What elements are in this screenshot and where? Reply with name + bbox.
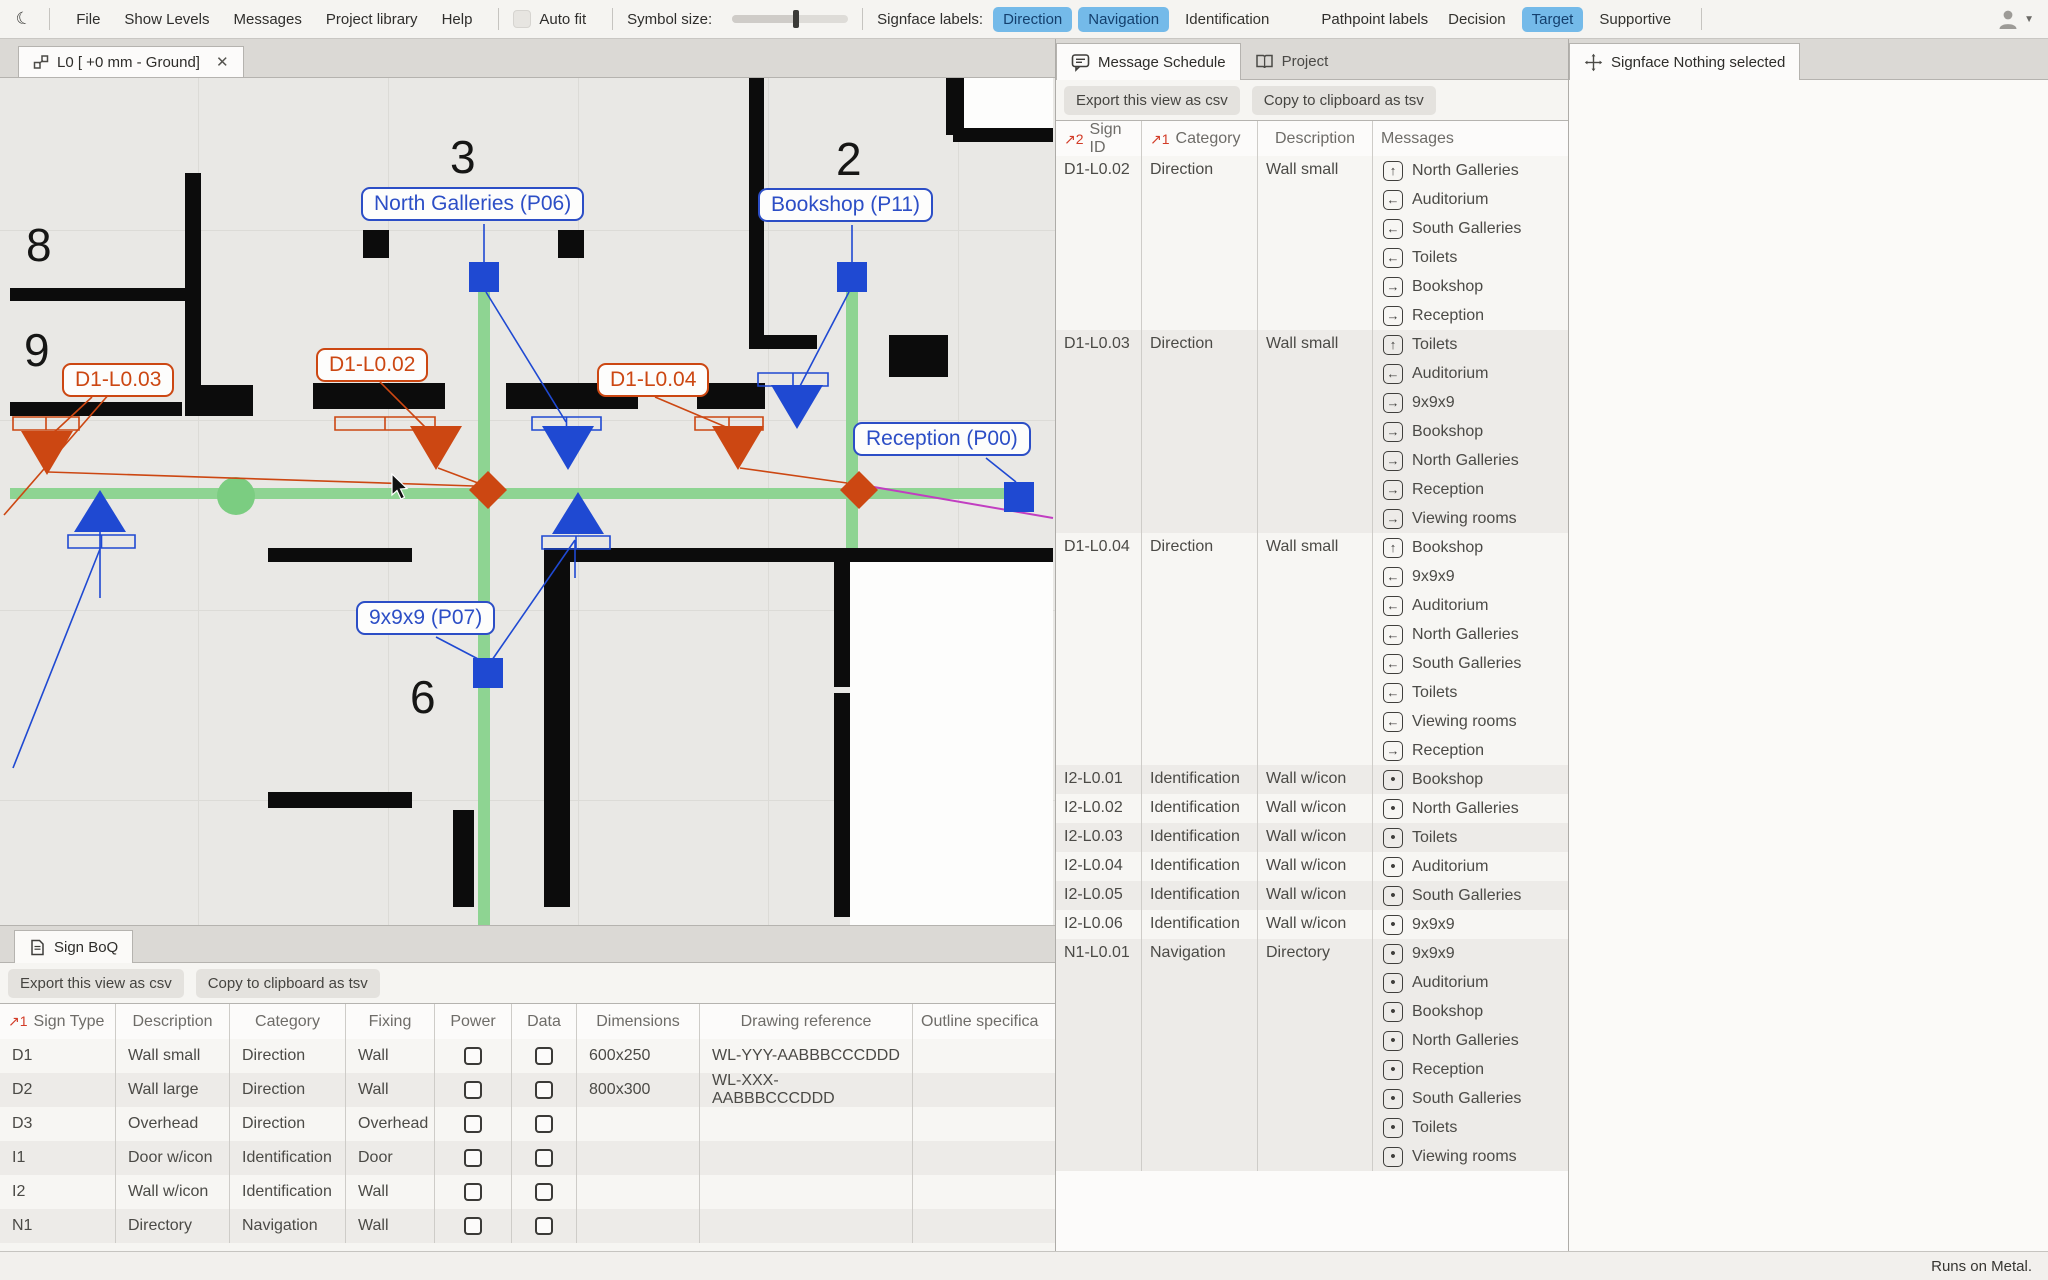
message-text: Bookshop — [1412, 771, 1483, 789]
signface-triangle-up[interactable] — [74, 490, 126, 532]
arrow-dot-icon: • — [1383, 1089, 1403, 1109]
sign-row-i2-l0-05[interactable]: I2-L0.05IdentificationWall w/icon•South … — [1056, 881, 1568, 910]
sign-type-cell: I1 — [0, 1141, 116, 1175]
message-item[interactable]: →Reception — [1373, 475, 1568, 504]
connector-line — [48, 472, 474, 486]
boq-toolbar: Export this view as csv Copy to clipboar… — [0, 963, 1055, 1003]
room-number: 9 — [24, 323, 50, 377]
power-checkbox[interactable] — [464, 1149, 482, 1167]
column-label: Category — [255, 1013, 320, 1031]
signface-label-navigation[interactable]: Navigation — [1078, 7, 1169, 32]
sign-row-i2-l0-02[interactable]: I2-L0.02IdentificationWall w/icon•North … — [1056, 794, 1568, 823]
message-text: North Galleries — [1412, 162, 1519, 180]
tab-label: Message Schedule — [1098, 54, 1226, 71]
boq-row-i1[interactable]: I1Door w/iconIdentificationDoor — [0, 1141, 1055, 1175]
column-label: Category — [1176, 130, 1241, 148]
boq-row-n1[interactable]: N1DirectoryNavigationWall — [0, 1209, 1055, 1243]
column-label: Sign Type — [34, 1013, 105, 1031]
separator — [49, 8, 50, 30]
message-text: North Galleries — [1412, 452, 1519, 470]
messages-cell: ↑North Galleries←Auditorium←South Galler… — [1373, 156, 1569, 330]
message-text: Viewing rooms — [1412, 1148, 1517, 1166]
tab-signface[interactable]: Signface Nothing selected — [1569, 43, 1800, 80]
arrow-up-icon: ↑ — [1383, 161, 1403, 181]
message-item[interactable]: ←Auditorium — [1373, 185, 1568, 214]
menu-show-levels[interactable]: Show Levels — [112, 7, 221, 32]
category-cell: Identification — [1142, 794, 1258, 823]
signface-triangle-up[interactable] — [552, 492, 604, 534]
export-csv-button[interactable]: Export this view as csv — [8, 969, 184, 998]
data-checkbox[interactable] — [535, 1115, 553, 1133]
message-text: Toilets — [1412, 336, 1457, 354]
description-cell: Wall small — [1258, 330, 1373, 533]
arrow-dot-icon: • — [1383, 1031, 1403, 1051]
menu-messages[interactable]: Messages — [221, 7, 313, 32]
category-cell: Direction — [230, 1039, 346, 1073]
fixing-cell: Wall — [346, 1175, 435, 1209]
message-text: Auditorium — [1412, 597, 1488, 615]
sign-row-d1-l0-03[interactable]: D1-L0.03DirectionWall small↑Toilets←Audi… — [1056, 330, 1568, 533]
message-item[interactable]: •9x9x9 — [1373, 910, 1568, 939]
sign-id-cell: D1-L0.02 — [1056, 156, 1142, 330]
description-cell: Wall w/icon — [1258, 765, 1373, 794]
pathpoint-square[interactable] — [469, 262, 499, 292]
message-text: North Galleries — [1412, 800, 1519, 818]
message-item[interactable]: •Bookshop — [1373, 765, 1568, 794]
tab-level-l0[interactable]: L0 [ +0 mm - Ground] ✕ — [18, 46, 244, 77]
outline-spec-cell — [913, 1175, 1053, 1209]
message-item[interactable]: →Bookshop — [1373, 417, 1568, 446]
category-cell: Identification — [1142, 765, 1258, 794]
message-text: North Galleries — [1412, 1032, 1519, 1050]
signface-tab-label: Signface Nothing selected — [1611, 54, 1785, 71]
sign-row-i2-l0-01[interactable]: I2-L0.01IdentificationWall w/icon•Booksh… — [1056, 765, 1568, 794]
user-menu[interactable]: ▼ — [1997, 8, 2034, 30]
sign-rect[interactable] — [542, 536, 610, 549]
move-icon — [1584, 53, 1603, 72]
power-checkbox[interactable] — [464, 1081, 482, 1099]
message-text: Auditorium — [1412, 858, 1488, 876]
category-cell: Identification — [1142, 852, 1258, 881]
data-cell — [512, 1209, 577, 1243]
sign-row-i2-l0-04[interactable]: I2-L0.04IdentificationWall w/icon•Audito… — [1056, 852, 1568, 881]
message-schedule-panel: Message Schedule Project Export this vie… — [1055, 39, 1568, 1251]
symbol-size-slider[interactable] — [732, 15, 848, 23]
sign-id-cell: I2-L0.02 — [1056, 794, 1142, 823]
arrow-dot-icon: • — [1383, 915, 1403, 935]
pathpoint-label-toggles: DecisionTargetSupportive — [1438, 7, 1687, 32]
boq-tab-strip: Sign BoQ — [0, 926, 1055, 963]
message-item[interactable]: ←Auditorium — [1373, 591, 1568, 620]
message-text: Toilets — [1412, 1119, 1457, 1137]
column-label: Drawing reference — [741, 1013, 872, 1031]
data-checkbox[interactable] — [535, 1183, 553, 1201]
message-text: Reception — [1412, 1061, 1484, 1079]
description-cell: Wall w/icon — [1258, 881, 1373, 910]
message-text: Auditorium — [1412, 191, 1488, 209]
message-text: Toilets — [1412, 249, 1457, 267]
arrow-up-icon: ↑ — [1383, 335, 1403, 355]
message-item[interactable]: •Bookshop — [1373, 997, 1568, 1026]
sign-row-d1-l0-04[interactable]: D1-L0.04DirectionWall small↑Bookshop←9x9… — [1056, 533, 1568, 765]
sign-boq-panel: Sign BoQ Export this view as csv Copy to… — [0, 925, 1055, 1251]
arrow-left-icon: ← — [1383, 248, 1403, 268]
status-bar: Runs on Metal. — [0, 1251, 2048, 1280]
room-number: 3 — [450, 130, 476, 184]
message-text: 9x9x9 — [1412, 394, 1455, 412]
pathpoint-label-target[interactable]: Target — [1522, 7, 1584, 32]
data-checkbox[interactable] — [535, 1149, 553, 1167]
slider-track[interactable] — [732, 15, 848, 23]
column-label: Messages — [1381, 130, 1454, 148]
arrow-left-icon: ← — [1383, 190, 1403, 210]
signface-triangle-down[interactable] — [21, 431, 73, 475]
signface-tab-strip: Signface Nothing selected — [1569, 39, 2048, 80]
signface-flag[interactable]: D1-L0.03 — [62, 363, 174, 397]
tab-sign-boq[interactable]: Sign BoQ — [14, 930, 133, 963]
category-cell: Identification — [1142, 910, 1258, 939]
column-header-data[interactable]: Data — [512, 1004, 577, 1039]
category-cell: Identification — [1142, 823, 1258, 852]
signface-flag[interactable]: D1-L0.02 — [316, 348, 428, 382]
category-cell: Direction — [1142, 533, 1258, 765]
column-header-drawing-reference[interactable]: Drawing reference — [700, 1004, 913, 1039]
data-checkbox[interactable] — [535, 1217, 553, 1235]
boq-row-i2[interactable]: I2Wall w/iconIdentificationWall — [0, 1175, 1055, 1209]
column-header-outline-specifica[interactable]: Outline specifica — [913, 1004, 1053, 1039]
copy-tsv-button[interactable]: Copy to clipboard as tsv — [1252, 86, 1436, 115]
signface-triangle-down[interactable] — [542, 426, 594, 470]
connector-line — [13, 549, 100, 768]
signface-triangle-down[interactable] — [712, 426, 764, 470]
signface-triangle-down[interactable] — [410, 426, 462, 470]
fixing-cell: Door — [346, 1141, 435, 1175]
tab-message-schedule[interactable]: Message Schedule — [1056, 43, 1241, 80]
drawing-reference-cell — [700, 1107, 913, 1141]
message-item[interactable]: →North Galleries — [1373, 446, 1568, 475]
power-checkbox[interactable] — [464, 1047, 482, 1065]
floorplan-canvas[interactable]: North Galleries (P06)Bookshop (P11)Recep… — [0, 78, 1055, 925]
column-header-power[interactable]: Power — [435, 1004, 512, 1039]
arrow-dot-icon: • — [1383, 828, 1403, 848]
arrow-up-icon: ↑ — [1383, 538, 1403, 558]
sign-id-cell: I2-L0.01 — [1056, 765, 1142, 794]
column-label: Power — [450, 1013, 495, 1031]
arrow-right-icon: → — [1383, 480, 1403, 500]
arrow-left-icon: ← — [1383, 712, 1403, 732]
description-cell: Wall small — [116, 1039, 230, 1073]
document-icon — [29, 939, 46, 956]
messages-cell: ↑Toilets←Auditorium→9x9x9→Bookshop→North… — [1373, 330, 1569, 533]
slider-thumb[interactable] — [793, 10, 799, 28]
message-item[interactable]: ←Toilets — [1373, 678, 1568, 707]
sign-row-i2-l0-03[interactable]: I2-L0.03IdentificationWall w/icon•Toilet… — [1056, 823, 1568, 852]
message-item[interactable]: •North Galleries — [1373, 794, 1568, 823]
message-item[interactable]: ←Viewing rooms — [1373, 707, 1568, 736]
connector-line — [438, 468, 478, 483]
sign-type-cell: I2 — [0, 1175, 116, 1209]
connector-line — [492, 540, 575, 660]
data-cell — [512, 1107, 577, 1141]
message-text: Viewing rooms — [1412, 713, 1517, 731]
outline-spec-cell — [913, 1073, 1053, 1107]
arrow-dot-icon: • — [1383, 857, 1403, 877]
category-cell: Identification — [1142, 881, 1258, 910]
arrow-right-icon: → — [1383, 422, 1403, 442]
room-number: 2 — [836, 132, 862, 186]
message-text: 9x9x9 — [1412, 945, 1455, 963]
signface-label-identification[interactable]: Identification — [1175, 7, 1279, 32]
category-cell: Direction — [230, 1107, 346, 1141]
dimensions-cell — [577, 1107, 700, 1141]
power-cell — [435, 1073, 512, 1107]
arrow-right-icon: → — [1383, 741, 1403, 761]
data-cell — [512, 1073, 577, 1107]
fixing-cell: Wall — [346, 1039, 435, 1073]
column-label: Description — [132, 1013, 212, 1031]
pathpoint-label-decision[interactable]: Decision — [1438, 7, 1516, 32]
pathpoint-label[interactable]: Reception (P00) — [853, 422, 1031, 456]
fixing-cell: Wall — [346, 1209, 435, 1243]
fixing-cell: Overhead — [346, 1107, 435, 1141]
fixing-cell: Wall — [346, 1073, 435, 1107]
sign-rect[interactable] — [68, 535, 135, 548]
message-text: Toilets — [1412, 684, 1457, 702]
column-header-category[interactable]: ↗1Category — [1142, 121, 1258, 157]
description-cell: Wall w/icon — [1258, 794, 1373, 823]
chevron-down-icon: ▼ — [2024, 14, 2034, 25]
connector-line — [380, 382, 428, 430]
message-item[interactable]: •Viewing rooms — [1373, 1142, 1568, 1171]
level-tab-strip: L0 [ +0 mm - Ground] ✕ — [0, 39, 1055, 78]
message-item[interactable]: ←Auditorium — [1373, 359, 1568, 388]
message-text: 9x9x9 — [1412, 568, 1455, 586]
message-item[interactable]: ←9x9x9 — [1373, 562, 1568, 591]
message-text: Reception — [1412, 481, 1484, 499]
messages-cell: •Toilets — [1373, 823, 1569, 852]
signface-flag[interactable]: D1-L0.04 — [597, 363, 709, 397]
message-text: Toilets — [1412, 829, 1457, 847]
power-cell — [435, 1107, 512, 1141]
arrow-left-icon: ← — [1383, 364, 1403, 384]
pathpoint-label-supportive[interactable]: Supportive — [1589, 7, 1681, 32]
arrow-dot-icon: • — [1383, 799, 1403, 819]
column-header-sign-id[interactable]: ↗2Sign ID — [1056, 121, 1142, 157]
description-cell: Overhead — [116, 1107, 230, 1141]
sign-id-cell: N1-L0.01 — [1056, 939, 1142, 1171]
message-item[interactable]: •Toilets — [1373, 1113, 1568, 1142]
messages-cell: •South Galleries — [1373, 881, 1569, 910]
category-cell: Direction — [1142, 156, 1258, 330]
arrow-left-icon: ← — [1383, 654, 1403, 674]
column-header-dimensions[interactable]: Dimensions — [577, 1004, 700, 1039]
column-header-description[interactable]: Description — [1258, 121, 1373, 157]
message-text: South Galleries — [1412, 1090, 1521, 1108]
separator — [1701, 8, 1702, 30]
signface-panel: Signface Nothing selected — [1568, 39, 2048, 1251]
power-cell — [435, 1141, 512, 1175]
message-item[interactable]: •North Galleries — [1373, 1026, 1568, 1055]
message-item[interactable]: →9x9x9 — [1373, 388, 1568, 417]
sort-indicator: ↗2 — [1064, 131, 1084, 148]
arrow-dot-icon: • — [1383, 1118, 1403, 1138]
column-label: Sign ID — [1090, 121, 1133, 157]
message-item[interactable]: →Viewing rooms — [1373, 504, 1568, 533]
connector-line — [655, 397, 733, 430]
export-csv-button[interactable]: Export this view as csv — [1064, 86, 1240, 115]
message-item[interactable]: →Reception — [1373, 301, 1568, 330]
drawing-reference-cell — [700, 1175, 913, 1209]
auto-fit-checkbox[interactable] — [513, 10, 531, 28]
description-cell: Wall w/icon — [116, 1175, 230, 1209]
data-checkbox[interactable] — [535, 1047, 553, 1065]
book-icon — [1255, 52, 1274, 71]
pathpoint-label[interactable]: North Galleries (P06) — [361, 187, 584, 221]
message-item[interactable]: •Toilets — [1373, 823, 1568, 852]
signface-triangle-down[interactable] — [771, 385, 823, 429]
dimensions-cell — [577, 1141, 700, 1175]
arrow-right-icon: → — [1383, 393, 1403, 413]
sign-type-cell: N1 — [0, 1209, 116, 1243]
messages-cell: •9x9x9 — [1373, 910, 1569, 939]
menu-help[interactable]: Help — [430, 7, 485, 32]
description-cell: Directory — [116, 1209, 230, 1243]
description-cell: Wall small — [1258, 156, 1373, 330]
column-header-sign-type[interactable]: ↗1Sign Type — [0, 1004, 116, 1039]
power-checkbox[interactable] — [464, 1115, 482, 1133]
arrow-dot-icon: • — [1383, 973, 1403, 993]
description-cell: Wall w/icon — [1258, 823, 1373, 852]
message-text: Bookshop — [1412, 1003, 1483, 1021]
column-label: Data — [527, 1013, 561, 1031]
data-checkbox[interactable] — [535, 1081, 553, 1099]
arrow-dot-icon: • — [1383, 1002, 1403, 1022]
room-number: 6 — [410, 670, 436, 724]
sign-row-i2-l0-06[interactable]: I2-L0.06IdentificationWall w/icon•9x9x9 — [1056, 910, 1568, 939]
outline-spec-cell — [913, 1039, 1053, 1073]
pathpoint-diamond[interactable] — [840, 471, 878, 509]
signface-label-direction[interactable]: Direction — [993, 7, 1072, 32]
category-cell: Navigation — [1142, 939, 1258, 1171]
message-panel-toolbar: Export this view as csv Copy to clipboar… — [1056, 80, 1568, 120]
connector-line — [740, 468, 847, 483]
message-item[interactable]: ↑North Galleries — [1373, 156, 1568, 185]
pathpoint-square[interactable] — [1004, 482, 1034, 512]
boq-row-d1[interactable]: D1Wall smallDirectionWall600x250WL-YYY-A… — [0, 1039, 1055, 1073]
dimensions-cell — [577, 1175, 700, 1209]
copy-tsv-button[interactable]: Copy to clipboard as tsv — [196, 969, 380, 998]
speech-bubble-icon — [1071, 53, 1090, 72]
right-panel-tab-strip: Message Schedule Project — [1056, 39, 1568, 80]
pathpoint-label[interactable]: Bookshop (P11) — [758, 188, 933, 222]
status-text: Runs on Metal. — [1931, 1258, 2032, 1275]
close-icon[interactable]: ✕ — [216, 53, 229, 71]
message-item[interactable]: →Bookshop — [1373, 272, 1568, 301]
outline-spec-cell — [913, 1107, 1053, 1141]
message-item[interactable]: •Auditorium — [1373, 852, 1568, 881]
message-text: South Galleries — [1412, 655, 1521, 673]
pathpoint-diamond[interactable] — [469, 471, 507, 509]
description-cell: Wall small — [1258, 533, 1373, 765]
message-item[interactable]: ←Toilets — [1373, 243, 1568, 272]
message-text: 9x9x9 — [1412, 916, 1455, 934]
power-checkbox[interactable] — [464, 1217, 482, 1235]
sign-id-cell: I2-L0.03 — [1056, 823, 1142, 852]
message-text: Bookshop — [1412, 539, 1483, 557]
arrow-left-icon: ← — [1383, 596, 1403, 616]
category-cell: Identification — [230, 1141, 346, 1175]
menu-file[interactable]: File — [64, 7, 112, 32]
message-item[interactable]: •South Galleries — [1373, 1084, 1568, 1113]
drawing-reference-cell: WL-XXX-AABBBCCCDDD — [700, 1073, 913, 1107]
message-item[interactable]: •South Galleries — [1373, 881, 1568, 910]
column-header-messages[interactable]: Messages — [1373, 121, 1569, 157]
drawing-reference-cell: WL-YYY-AABBBCCCDDD — [700, 1039, 913, 1073]
message-item[interactable]: ←North Galleries — [1373, 620, 1568, 649]
outline-spec-cell — [913, 1141, 1053, 1175]
sign-id-cell: I2-L0.05 — [1056, 881, 1142, 910]
boq-row-d3[interactable]: D3OverheadDirectionOverhead — [0, 1107, 1055, 1141]
power-cell — [435, 1175, 512, 1209]
sign-row-d1-l0-02[interactable]: D1-L0.02DirectionWall small↑North Galler… — [1056, 156, 1568, 330]
message-item[interactable]: →Reception — [1373, 736, 1568, 765]
drawing-reference-cell — [700, 1141, 913, 1175]
message-item[interactable]: ↑Toilets — [1373, 330, 1568, 359]
dimensions-cell: 800x300 — [577, 1073, 700, 1107]
separator — [612, 8, 613, 30]
message-text: Viewing rooms — [1412, 510, 1517, 528]
arrow-left-icon: ← — [1383, 683, 1403, 703]
slider-fill — [732, 15, 796, 23]
sign-row-n1-l0-01[interactable]: N1-L0.01NavigationDirectory•9x9x9•Audito… — [1056, 939, 1568, 1171]
message-text: Bookshop — [1412, 423, 1483, 441]
column-header-fixing[interactable]: Fixing — [346, 1004, 435, 1039]
pathpoint-square[interactable] — [837, 262, 867, 292]
sign-id-cell: D1-L0.03 — [1056, 330, 1142, 533]
drawing-reference-cell — [700, 1209, 913, 1243]
menu-project-library[interactable]: Project library — [314, 7, 430, 32]
message-item[interactable]: ↑Bookshop — [1373, 533, 1568, 562]
data-cell — [512, 1039, 577, 1073]
message-text: Auditorium — [1412, 365, 1488, 383]
description-cell: Wall w/icon — [1258, 910, 1373, 939]
sign-rect[interactable] — [758, 373, 828, 386]
boq-row-d2[interactable]: D2Wall largeDirectionWall800x300WL-XXX-A… — [0, 1073, 1055, 1107]
column-header-category[interactable]: Category — [230, 1004, 346, 1039]
arrow-dot-icon: • — [1383, 886, 1403, 906]
sign-id-cell: D1-L0.04 — [1056, 533, 1142, 765]
sign-type-cell: D3 — [0, 1107, 116, 1141]
top-menu-bar: ☾ FileShow LevelsMessagesProject library… — [0, 0, 2048, 39]
message-item[interactable]: ←South Galleries — [1373, 649, 1568, 678]
message-table-header: ↗2Sign ID↗1CategoryDescriptionMessages — [1056, 120, 1568, 156]
message-item[interactable]: ←South Galleries — [1373, 214, 1568, 243]
column-header-description[interactable]: Description — [116, 1004, 230, 1039]
sign-type-cell: D1 — [0, 1039, 116, 1073]
pathpoint-square[interactable] — [473, 658, 503, 688]
arrow-left-icon: ← — [1383, 567, 1403, 587]
message-item[interactable]: •Auditorium — [1373, 968, 1568, 997]
message-item[interactable]: •Reception — [1373, 1055, 1568, 1084]
power-checkbox[interactable] — [464, 1183, 482, 1201]
message-item[interactable]: •9x9x9 — [1373, 939, 1568, 968]
column-label: Outline specifica — [921, 1013, 1038, 1031]
signface-labels-label: Signface labels: — [877, 11, 983, 28]
sign-id-cell: I2-L0.06 — [1056, 910, 1142, 939]
tab-project[interactable]: Project — [1241, 43, 1343, 80]
pathpoint-label[interactable]: 9x9x9 (P07) — [356, 601, 495, 635]
level-icon — [33, 54, 49, 70]
